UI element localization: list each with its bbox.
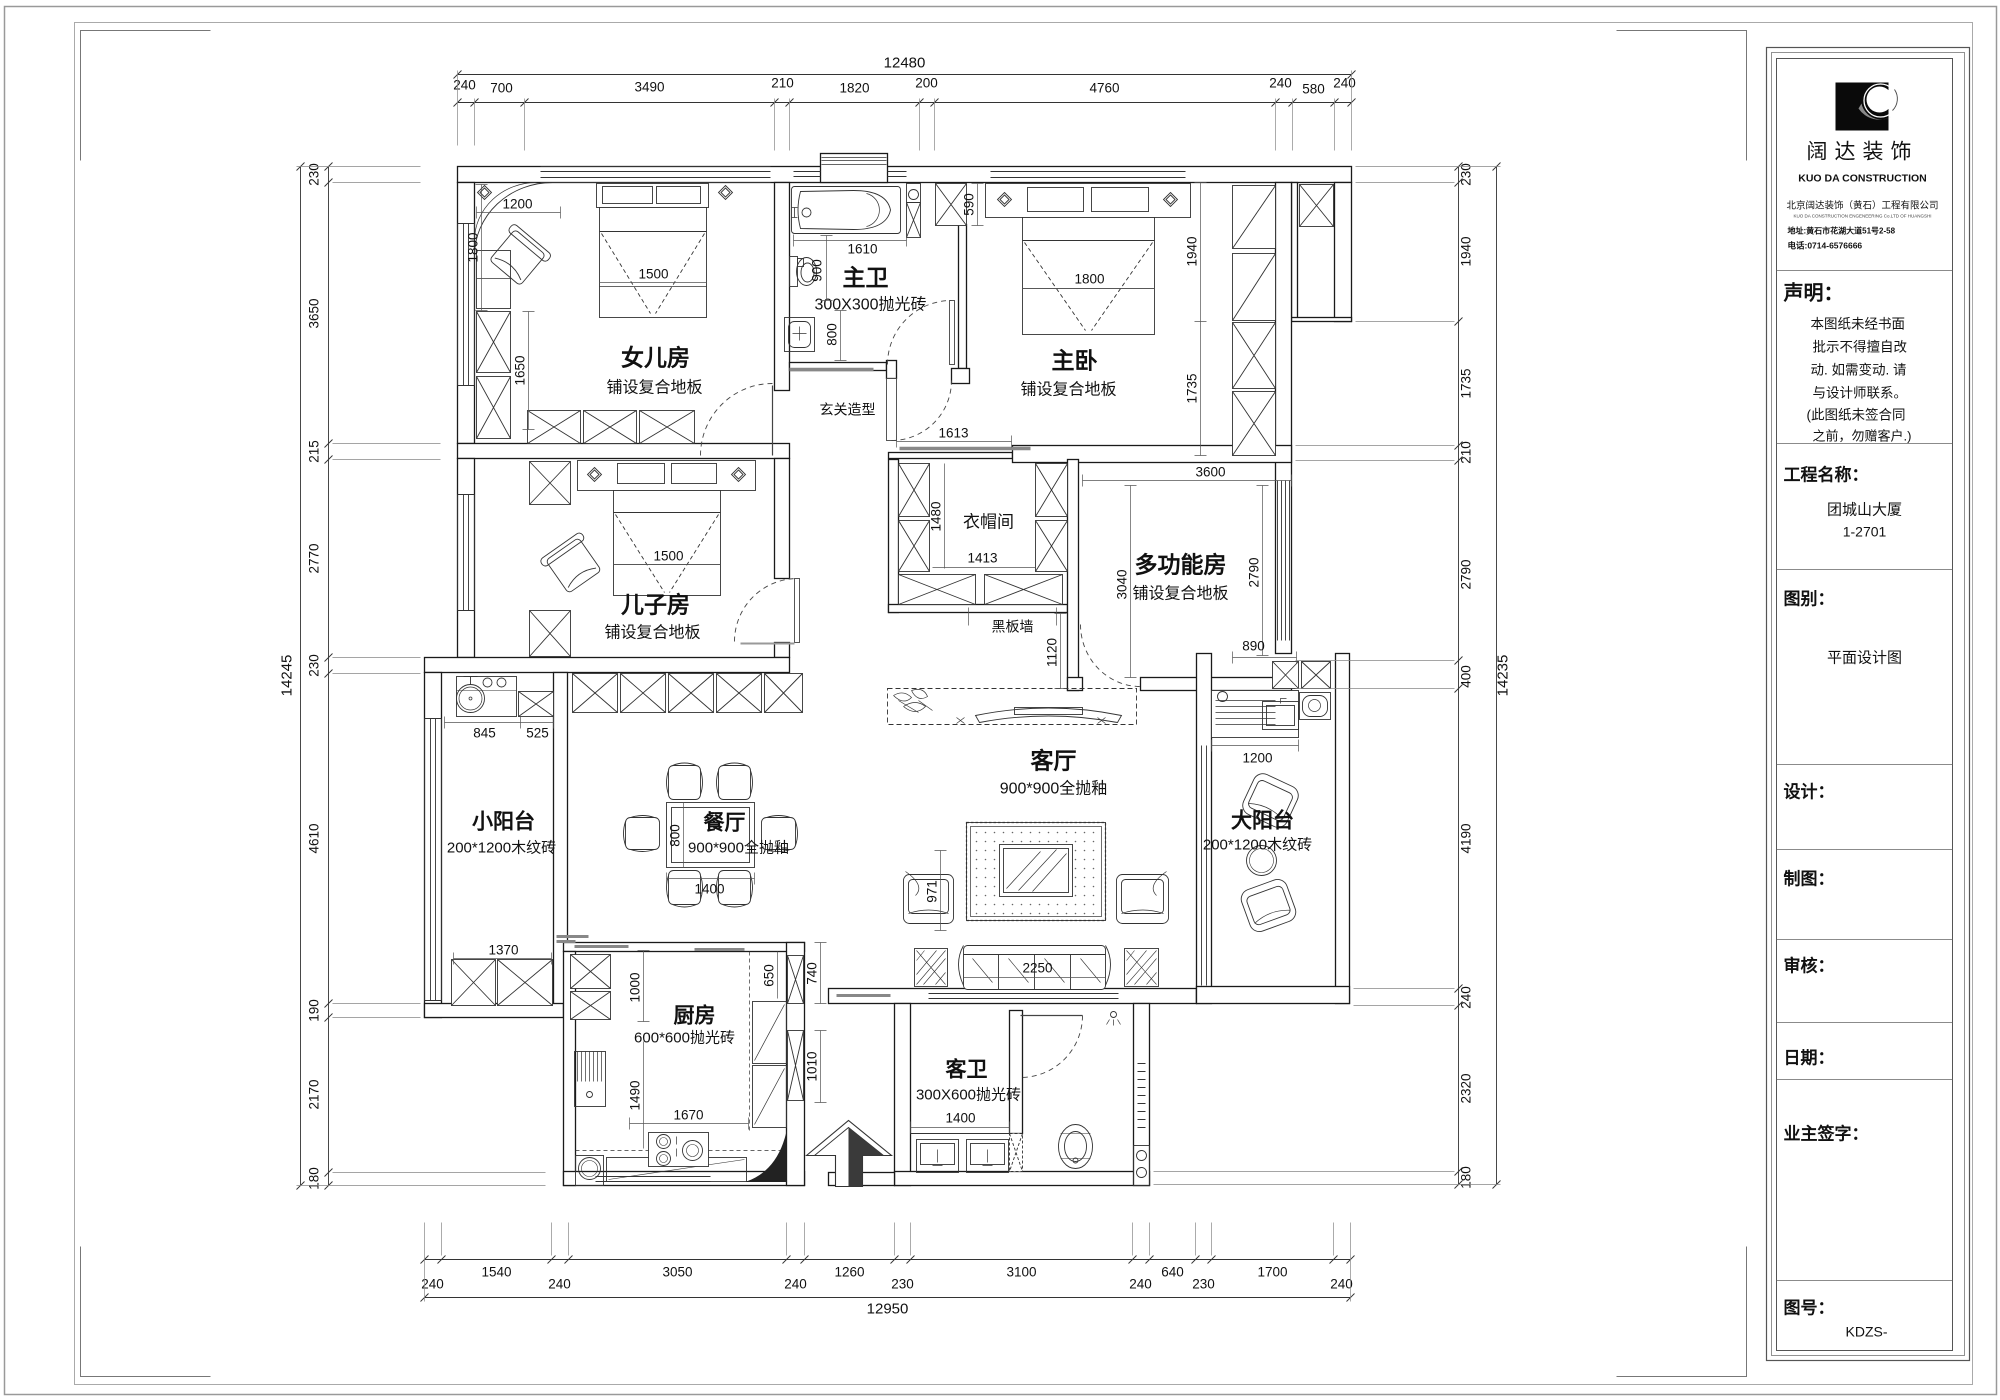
- svg-text:4760: 4760: [1089, 81, 1119, 96]
- svg-text:200*1200木纹砖: 200*1200木纹砖: [447, 840, 556, 857]
- svg-text:4610: 4610: [307, 823, 322, 853]
- svg-text:KDZS-: KDZS-: [1846, 1324, 1888, 1340]
- svg-text:890: 890: [1242, 639, 1265, 654]
- svg-text:14245: 14245: [279, 655, 296, 697]
- svg-text:地址:黄石市花湖大道51号2-58: 地址:黄石市花湖大道51号2-58: [1788, 226, 1896, 236]
- svg-text:1480: 1480: [929, 501, 944, 531]
- svg-text:2790: 2790: [1247, 557, 1262, 587]
- svg-text:1260: 1260: [834, 1265, 864, 1280]
- svg-text:3600: 3600: [1195, 465, 1225, 480]
- svg-text:平面设计图: 平面设计图: [1827, 650, 1902, 667]
- svg-text:2170: 2170: [307, 1079, 322, 1109]
- svg-text:声明：: 声明：: [1783, 281, 1844, 305]
- svg-text:600*600抛光砖: 600*600抛光砖: [634, 1030, 735, 1047]
- svg-text:2790: 2790: [1459, 559, 1474, 589]
- svg-text:3040: 3040: [1115, 569, 1130, 599]
- svg-text:图别：: 图别：: [1784, 590, 1835, 609]
- svg-text:铺设复合地板: 铺设复合地板: [1020, 381, 1116, 399]
- svg-text:240: 240: [1269, 76, 1292, 91]
- svg-text:大阳台: 大阳台: [1231, 809, 1294, 833]
- svg-text:图号：: 图号：: [1784, 1299, 1835, 1318]
- svg-text:儿子房: 儿子房: [621, 592, 690, 618]
- svg-text:1735: 1735: [1185, 373, 1200, 403]
- svg-text:12950: 12950: [867, 1301, 909, 1318]
- svg-text:190: 190: [307, 999, 322, 1022]
- svg-text:审核：: 审核：: [1784, 956, 1835, 976]
- svg-text:1-2701: 1-2701: [1843, 524, 1887, 540]
- svg-text:本图纸未经书面: 本图纸未经书面: [1811, 317, 1906, 332]
- svg-text:日期：: 日期：: [1784, 1049, 1835, 1068]
- svg-text:1370: 1370: [488, 943, 518, 958]
- svg-text:衣帽间: 衣帽间: [963, 513, 1014, 532]
- svg-text:铺设复合地板: 铺设复合地板: [606, 379, 702, 397]
- svg-text:KUO DA CONSTRUCTION ENGENEERIN: KUO DA CONSTRUCTION ENGENEERING Co.LTD O…: [1794, 214, 1932, 219]
- svg-text:1670: 1670: [673, 1108, 703, 1123]
- svg-text:1500: 1500: [653, 549, 683, 564]
- svg-text:300X600抛光砖: 300X600抛光砖: [916, 1087, 1021, 1104]
- svg-text:2320: 2320: [1459, 1073, 1474, 1103]
- svg-text:900: 900: [810, 259, 825, 282]
- svg-text:阔达装饰: 阔达装饰: [1807, 141, 1919, 164]
- svg-text:210: 210: [1459, 441, 1474, 464]
- svg-text:740: 740: [805, 962, 820, 985]
- svg-text:设计：: 设计：: [1784, 782, 1835, 802]
- svg-text:玄关造型: 玄关造型: [820, 402, 876, 418]
- svg-text:2250: 2250: [1022, 961, 1052, 976]
- svg-text:400: 400: [1459, 665, 1474, 688]
- svg-text:1400: 1400: [694, 882, 724, 897]
- svg-text:团城山大厦: 团城山大厦: [1827, 502, 1902, 519]
- svg-text:之前，勿赠客户.): 之前，勿赠客户.): [1813, 429, 1912, 444]
- svg-text:女儿房: 女儿房: [621, 345, 690, 371]
- svg-text:900*900全抛釉: 900*900全抛釉: [688, 839, 789, 857]
- svg-text:240: 240: [1333, 76, 1356, 91]
- svg-text:3650: 3650: [307, 298, 322, 328]
- svg-text:590: 590: [962, 193, 977, 216]
- svg-text:240: 240: [1129, 1277, 1152, 1292]
- svg-text:1000: 1000: [628, 972, 643, 1002]
- svg-text:971: 971: [925, 880, 940, 903]
- svg-text:3490: 3490: [634, 80, 664, 95]
- svg-text:240: 240: [784, 1277, 807, 1292]
- svg-text:650: 650: [762, 964, 777, 987]
- svg-text:800: 800: [825, 323, 840, 346]
- svg-text:12480: 12480: [884, 55, 926, 72]
- svg-text:200: 200: [915, 76, 938, 91]
- svg-text:批示不得擅自改: 批示不得擅自改: [1813, 339, 1908, 355]
- svg-text:230: 230: [1192, 1277, 1215, 1292]
- svg-text:制图：: 制图：: [1784, 869, 1835, 889]
- svg-text:1610: 1610: [847, 242, 877, 257]
- svg-text:1800: 1800: [466, 232, 481, 262]
- svg-text:3100: 3100: [1006, 1265, 1036, 1280]
- svg-text:北京阔达装饰（黄石）工程有限公司: 北京阔达装饰（黄石）工程有限公司: [1786, 200, 1938, 212]
- svg-text:240: 240: [453, 78, 476, 93]
- svg-text:14235: 14235: [1495, 655, 1512, 697]
- svg-text:1010: 1010: [805, 1051, 820, 1081]
- svg-text:主卧: 主卧: [1052, 348, 1098, 374]
- svg-text:180: 180: [307, 1167, 322, 1190]
- svg-text:800: 800: [668, 824, 683, 847]
- svg-text:1700: 1700: [1257, 1265, 1287, 1280]
- svg-text:1940: 1940: [1185, 236, 1200, 266]
- svg-text:多功能房: 多功能房: [1135, 552, 1227, 578]
- svg-text:1940: 1940: [1459, 236, 1474, 266]
- svg-text:240: 240: [1330, 1277, 1353, 1292]
- svg-text:动. 如需变动. 请: 动. 如需变动. 请: [1811, 363, 1907, 378]
- svg-text:580: 580: [1302, 82, 1325, 97]
- svg-text:1735: 1735: [1459, 368, 1474, 398]
- svg-text:小阳台: 小阳台: [472, 810, 535, 834]
- svg-text:1650: 1650: [513, 355, 528, 385]
- svg-text:845: 845: [473, 726, 496, 741]
- svg-text:1820: 1820: [839, 81, 869, 96]
- svg-text:铺设复合地板: 铺设复合地板: [604, 624, 700, 642]
- svg-text:主卫: 主卫: [843, 265, 889, 291]
- svg-text:230: 230: [891, 1277, 914, 1292]
- svg-text:工程名称：: 工程名称：: [1784, 465, 1869, 485]
- svg-text:1200: 1200: [502, 197, 532, 212]
- svg-text:铺设复合地板: 铺设复合地板: [1132, 585, 1228, 603]
- svg-text:业主签字：: 业主签字：: [1784, 1124, 1869, 1144]
- svg-text:3050: 3050: [662, 1265, 692, 1280]
- svg-text:黑板墙: 黑板墙: [992, 619, 1034, 635]
- svg-text:525: 525: [526, 726, 549, 741]
- svg-text:1413: 1413: [967, 551, 997, 566]
- svg-text:1800: 1800: [1074, 272, 1104, 287]
- svg-text:1400: 1400: [945, 1111, 975, 1126]
- svg-text:1120: 1120: [1045, 638, 1060, 667]
- svg-text:900*900全抛釉: 900*900全抛釉: [1000, 780, 1108, 798]
- svg-text:(此图纸未签合同: (此图纸未签合同: [1807, 407, 1906, 423]
- svg-text:215: 215: [307, 440, 322, 463]
- svg-text:1200: 1200: [1242, 751, 1272, 766]
- svg-text:240: 240: [548, 1277, 571, 1292]
- svg-text:2770: 2770: [307, 543, 322, 573]
- svg-text:4190: 4190: [1459, 823, 1474, 853]
- svg-text:KUO DA CONSTRUCTION: KUO DA CONSTRUCTION: [1798, 173, 1927, 185]
- svg-text:210: 210: [771, 76, 794, 91]
- svg-text:1490: 1490: [628, 1080, 643, 1110]
- svg-text:1540: 1540: [481, 1265, 511, 1280]
- svg-text:客卫: 客卫: [946, 1058, 988, 1082]
- svg-text:640: 640: [1161, 1265, 1184, 1280]
- svg-text:电话:0714-6576666: 电话:0714-6576666: [1788, 241, 1863, 251]
- svg-text:餐厅: 餐厅: [704, 811, 746, 835]
- svg-text:300X300抛光砖: 300X300抛光砖: [814, 296, 926, 314]
- svg-text:700: 700: [490, 81, 513, 96]
- svg-text:230: 230: [307, 654, 322, 677]
- svg-text:240: 240: [1459, 986, 1474, 1009]
- svg-text:厨房: 厨房: [674, 1004, 716, 1028]
- svg-text:200*1200木纹砖: 200*1200木纹砖: [1203, 837, 1312, 854]
- svg-text:1500: 1500: [638, 267, 668, 282]
- svg-text:客厅: 客厅: [1031, 748, 1077, 774]
- svg-text:与设计师联系。: 与设计师联系。: [1813, 386, 1908, 401]
- svg-text:180: 180: [1459, 1166, 1474, 1189]
- svg-text:1613: 1613: [938, 426, 968, 441]
